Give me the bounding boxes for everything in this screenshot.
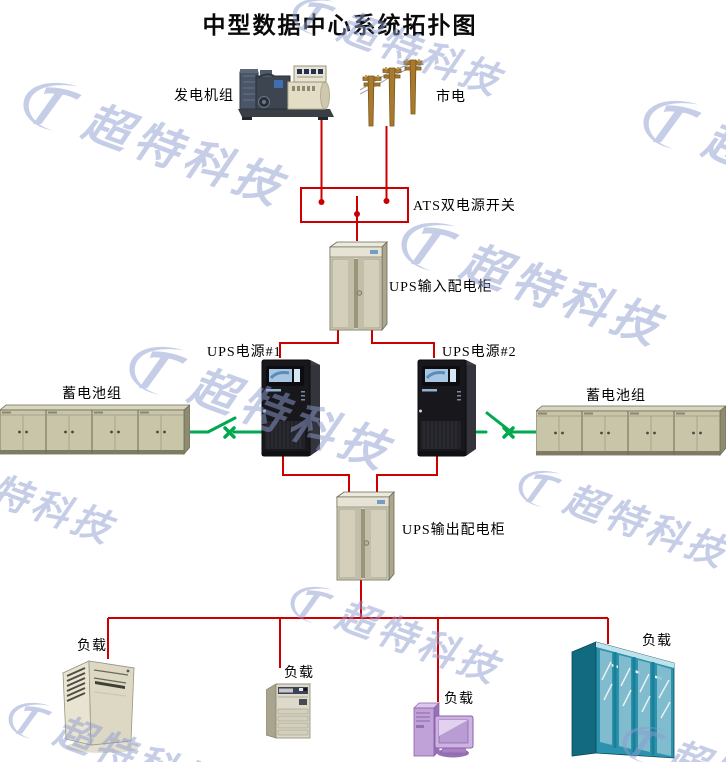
input-cabinet-label: UPS输入配电柜 (389, 276, 493, 296)
input-cabinet-image (328, 241, 388, 333)
load4-label: 负载 (642, 630, 672, 650)
ats-label: ATS双电源开关 (413, 195, 516, 215)
page-title: 中型数据中心系统拓扑图 (150, 6, 530, 40)
output-cabinet-image (335, 491, 395, 583)
battery-right-label: 蓄电池组 (586, 385, 646, 405)
load2-image (266, 678, 314, 740)
generator-label: 发电机组 (174, 85, 234, 105)
ups1-image (260, 357, 322, 459)
load3-label: 负载 (444, 688, 474, 708)
topology-diagram: 中型数据中心系统拓扑图 发电机组 市电 ATS双电源开关 UPS输入配电柜 UP… (0, 0, 726, 762)
ups2-image (416, 357, 478, 459)
ats-box-outline (301, 188, 408, 222)
load1-image (56, 652, 138, 757)
mains-poles-image (360, 56, 432, 128)
load1-label: 负载 (77, 635, 107, 655)
output-cabinet-label: UPS输出配电柜 (402, 519, 506, 539)
generator-image (238, 62, 334, 122)
battery-bank-left-image (0, 404, 190, 456)
battery-bank-right-image (536, 405, 726, 457)
battery-switch-left (184, 418, 262, 437)
ats-contact-dots (319, 198, 390, 217)
battery-left-label: 蓄电池组 (62, 383, 122, 403)
ups2-label: UPS电源#2 (442, 341, 517, 361)
mains-label: 市电 (436, 86, 466, 106)
load4-image (571, 640, 677, 760)
load2-label: 负载 (284, 662, 314, 682)
ups1-label: UPS电源#1 (207, 341, 282, 361)
